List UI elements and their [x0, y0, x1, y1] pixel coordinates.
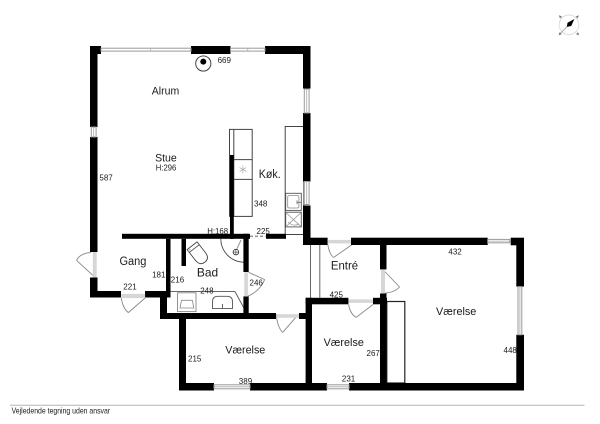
svg-text:H:168: H:168 [207, 227, 229, 236]
svg-text:225: 225 [257, 227, 271, 236]
svg-text:Bad: Bad [197, 265, 218, 279]
svg-text:425: 425 [330, 290, 344, 299]
svg-text:448: 448 [504, 346, 518, 355]
svg-text:267: 267 [367, 349, 381, 358]
svg-text:669: 669 [218, 56, 232, 65]
svg-text:Alrum: Alrum [152, 86, 179, 98]
svg-text:348: 348 [254, 200, 268, 209]
svg-text:Værelse: Værelse [436, 306, 476, 318]
svg-text:215: 215 [188, 355, 202, 364]
svg-text:H:296: H:296 [156, 164, 177, 173]
svg-text:181: 181 [152, 270, 166, 279]
svg-text:Værelse: Værelse [324, 337, 364, 349]
svg-text:231: 231 [342, 374, 356, 383]
svg-text:246: 246 [250, 279, 264, 288]
svg-text:Køk.: Køk. [259, 169, 281, 181]
svg-text:248: 248 [200, 286, 214, 295]
svg-text:Entré: Entré [331, 258, 359, 272]
svg-text:587: 587 [99, 174, 113, 183]
svg-text:221: 221 [123, 283, 137, 292]
svg-text:432: 432 [448, 248, 462, 257]
svg-text:216: 216 [171, 275, 185, 284]
svg-text:Gang: Gang [120, 256, 147, 268]
svg-text:Vejledende tegning uden ansvar: Vejledende tegning uden ansvar [12, 406, 111, 416]
svg-text:Værelse: Værelse [225, 345, 265, 357]
svg-text:389: 389 [239, 377, 253, 386]
